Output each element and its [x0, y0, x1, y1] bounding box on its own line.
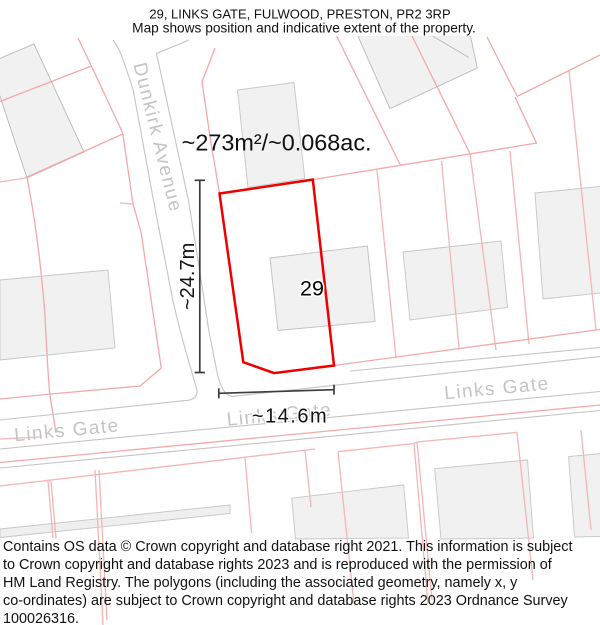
svg-text:co-ordinates) are subject to C: co-ordinates) are subject to Crown copyr…	[3, 593, 569, 609]
svg-text:to Crown copyright and databas: to Crown copyright and database rights 2…	[3, 557, 553, 573]
svg-text:29, LINKS GATE, FULWOOD, PREST: 29, LINKS GATE, FULWOOD, PRESTON, PR2 3R…	[149, 6, 450, 21]
svg-text:~14.6m: ~14.6m	[252, 406, 328, 428]
svg-text:~273m²/~0.068ac.: ~273m²/~0.068ac.	[182, 130, 372, 156]
svg-text:~24.7m: ~24.7m	[177, 243, 199, 310]
svg-text:100026316.: 100026316.	[3, 611, 79, 625]
svg-text:Contains OS data © Crown copyr: Contains OS data © Crown copyright and d…	[3, 539, 572, 555]
svg-text:HM Land Registry. The polygons: HM Land Registry. The polygons (includin…	[3, 575, 518, 591]
svg-text:29: 29	[300, 277, 324, 301]
svg-text:Map shows position and indicat: Map shows position and indicative extent…	[132, 21, 476, 36]
